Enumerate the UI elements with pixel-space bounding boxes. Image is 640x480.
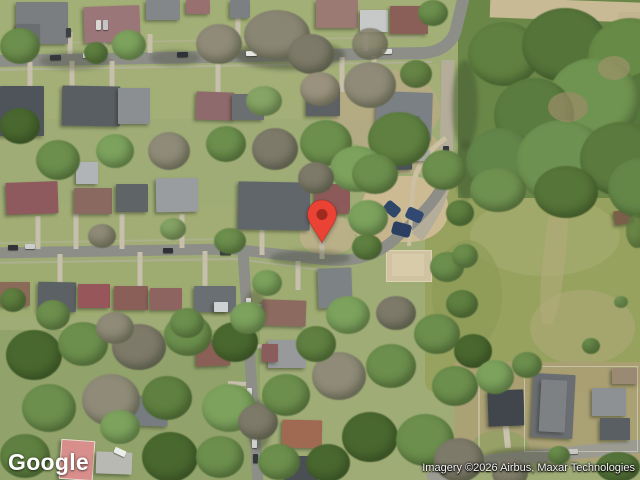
- bare-tree: [148, 132, 190, 170]
- forest-gap: [598, 56, 630, 80]
- tree: [326, 296, 370, 334]
- house: [96, 451, 133, 474]
- tree: [142, 376, 192, 420]
- bare-tree: [288, 34, 334, 74]
- tree: [258, 444, 300, 480]
- bare-tree: [376, 296, 416, 330]
- pin-dot: [317, 209, 328, 220]
- car: [50, 55, 61, 60]
- tree: [22, 384, 76, 432]
- tree: [296, 326, 336, 362]
- house: [74, 188, 112, 214]
- tree: [470, 168, 526, 212]
- house: [186, 0, 210, 14]
- tree: [400, 60, 432, 88]
- tree-shadow: [452, 60, 478, 150]
- tree: [366, 344, 416, 388]
- bare-tree: [344, 62, 396, 108]
- tree: [452, 244, 478, 268]
- tree: [214, 228, 246, 254]
- tree: [626, 214, 640, 248]
- tree: [246, 86, 282, 116]
- car: [66, 28, 71, 37]
- house: [116, 184, 148, 212]
- tree: [206, 126, 246, 162]
- house: [62, 85, 121, 126]
- tree: [96, 134, 134, 168]
- house: [262, 299, 307, 327]
- tree: [36, 140, 80, 180]
- tree: [0, 28, 40, 64]
- tree: [414, 314, 460, 354]
- imagery-attribution: Imagery ©2026 Airbus, Maxar Technologies: [422, 462, 635, 474]
- fence-line: [478, 380, 480, 448]
- house: [487, 389, 524, 426]
- playground-equipment: [404, 206, 424, 224]
- tree: [230, 302, 266, 334]
- tree: [112, 30, 146, 60]
- house: [262, 344, 278, 362]
- tree: [36, 300, 70, 330]
- house: [146, 0, 180, 20]
- tree: [418, 0, 448, 26]
- tree: [6, 330, 62, 380]
- playground-equipment: [391, 221, 413, 238]
- car: [8, 245, 18, 250]
- tree: [160, 218, 186, 240]
- tree: [348, 200, 388, 236]
- tree: [446, 200, 474, 226]
- bush: [582, 338, 600, 354]
- car: [177, 52, 188, 57]
- house: [316, 0, 358, 28]
- house: [156, 178, 199, 213]
- bare-tree: [298, 162, 334, 194]
- tree: [446, 290, 478, 318]
- tree: [142, 432, 198, 480]
- tree: [0, 108, 40, 144]
- google-logo[interactable]: Google: [8, 449, 89, 476]
- tree: [534, 166, 598, 218]
- house: [118, 88, 150, 124]
- house: [214, 302, 228, 312]
- house: [196, 91, 235, 120]
- house: [238, 181, 311, 230]
- tree: [170, 308, 204, 338]
- bare-tree: [96, 312, 134, 344]
- house: [150, 288, 182, 310]
- forest-gap: [548, 92, 588, 122]
- fence-line: [524, 366, 638, 452]
- car: [163, 248, 173, 253]
- car: [103, 20, 108, 30]
- house: [5, 181, 58, 215]
- car: [96, 20, 101, 30]
- house: [78, 284, 110, 308]
- house: [230, 0, 250, 18]
- tree: [342, 412, 398, 462]
- house: [114, 286, 148, 310]
- car: [25, 244, 35, 249]
- tree: [0, 288, 26, 312]
- tree: [476, 360, 514, 394]
- tree-shadow: [150, 50, 200, 66]
- tree: [432, 366, 478, 406]
- tree: [84, 42, 108, 64]
- tree: [306, 444, 350, 480]
- bare-tree: [252, 128, 298, 170]
- house: [282, 420, 322, 449]
- tree: [512, 352, 542, 378]
- bare-tree: [300, 72, 340, 106]
- tree: [422, 150, 466, 190]
- tree: [252, 270, 282, 296]
- bare-tree: [88, 224, 116, 248]
- tree: [196, 436, 244, 478]
- pin-body: [308, 200, 337, 243]
- tree-shadow: [270, 250, 350, 266]
- house: [76, 162, 98, 184]
- bare-tree: [196, 24, 242, 64]
- tree: [262, 374, 310, 416]
- tree: [100, 410, 140, 444]
- bare-tree: [352, 28, 388, 60]
- tree: [352, 154, 398, 194]
- satellite-map[interactable]: Google Imagery ©2026 Airbus, Maxar Techn…: [0, 0, 640, 480]
- bush: [614, 296, 628, 308]
- location-pin-icon[interactable]: [305, 199, 339, 245]
- tree: [352, 234, 382, 260]
